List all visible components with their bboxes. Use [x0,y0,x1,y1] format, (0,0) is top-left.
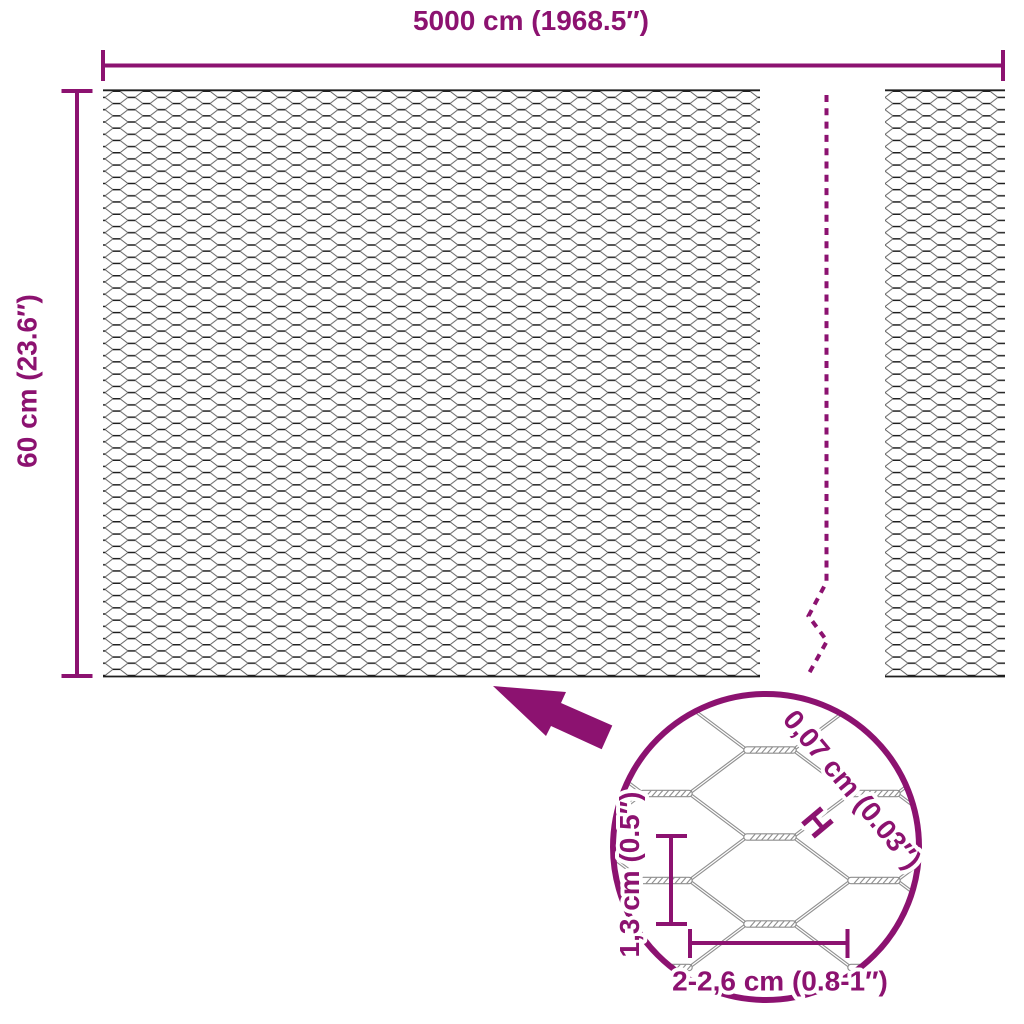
svg-text:2-2,6 cm (0.8-1″): 2-2,6 cm (0.8-1″) [672,966,888,997]
svg-text:60 cm (23.6″): 60 cm (23.6″) [12,294,43,468]
svg-text:1,3 cm (0.5″): 1,3 cm (0.5″) [614,792,645,958]
svg-text:5000 cm (1968.5″): 5000 cm (1968.5″) [413,5,649,36]
